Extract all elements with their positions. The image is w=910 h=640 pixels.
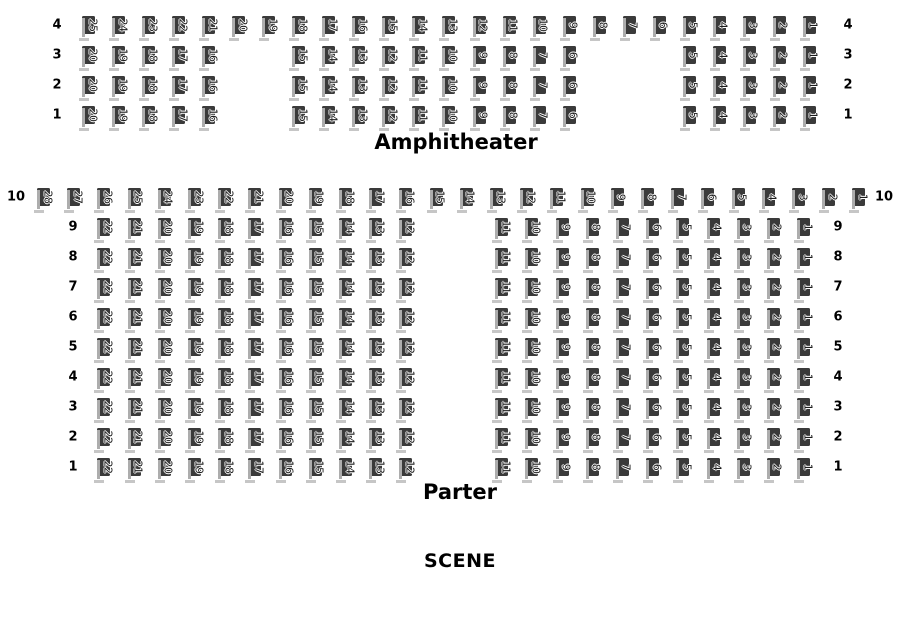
seat[interactable]: 8 [586,458,599,476]
seat[interactable]: 2 [767,368,780,386]
seat[interactable]: 12 [382,46,395,64]
seat[interactable]: 22 [97,248,110,266]
seat[interactable]: 7 [616,368,629,386]
seat[interactable]: 15 [309,428,322,446]
seat[interactable]: 22 [97,338,110,356]
seat[interactable]: 20 [158,278,171,296]
seat[interactable]: 18 [218,218,231,236]
seat[interactable]: 10 [581,188,594,206]
seat[interactable]: 9 [556,278,569,296]
seat[interactable]: 16 [279,218,292,236]
seat[interactable]: 11 [495,428,508,446]
seat[interactable]: 23 [142,16,155,34]
seat[interactable]: 5 [683,106,696,124]
seat[interactable]: 2 [767,398,780,416]
seat[interactable]: 22 [97,308,110,326]
seat[interactable]: 6 [646,308,659,326]
seat[interactable]: 25 [128,188,141,206]
seat[interactable]: 22 [97,368,110,386]
seat[interactable]: 1 [797,368,810,386]
seat[interactable]: 17 [248,308,261,326]
seat[interactable]: 23 [188,188,201,206]
seat[interactable]: 10 [525,398,538,416]
seat[interactable]: 1 [797,338,810,356]
seat[interactable]: 3 [743,106,756,124]
seat[interactable]: 14 [412,16,425,34]
seat[interactable]: 2 [767,308,780,326]
seat[interactable]: 9 [611,188,624,206]
seat[interactable]: 6 [563,106,576,124]
seat[interactable]: 11 [495,308,508,326]
seat[interactable]: 12 [399,428,412,446]
seat[interactable]: 19 [188,398,201,416]
seat[interactable]: 8 [503,46,516,64]
seat[interactable]: 3 [737,278,750,296]
seat[interactable]: 7 [616,218,629,236]
seat[interactable]: 6 [646,428,659,446]
seat[interactable]: 15 [292,46,305,64]
seat[interactable]: 14 [322,46,335,64]
seat[interactable]: 6 [563,46,576,64]
seat[interactable]: 9 [556,458,569,476]
seat[interactable]: 18 [218,368,231,386]
seat[interactable]: 4 [707,278,720,296]
seat[interactable]: 5 [732,188,745,206]
seat[interactable]: 17 [172,106,185,124]
seat[interactable]: 19 [112,76,125,94]
seat[interactable]: 7 [616,248,629,266]
seat[interactable]: 12 [399,248,412,266]
seat[interactable]: 14 [339,218,352,236]
seat[interactable]: 20 [82,46,95,64]
seat[interactable]: 9 [563,16,576,34]
seat[interactable]: 12 [399,308,412,326]
seat[interactable]: 4 [713,106,726,124]
seat[interactable]: 15 [309,398,322,416]
seat[interactable]: 18 [142,46,155,64]
seat[interactable]: 2 [767,248,780,266]
seat[interactable]: 14 [339,248,352,266]
seat[interactable]: 21 [202,16,215,34]
seat[interactable]: 16 [279,398,292,416]
seat[interactable]: 3 [737,218,750,236]
seat[interactable]: 22 [172,16,185,34]
seat[interactable]: 3 [743,16,756,34]
seat[interactable]: 20 [158,368,171,386]
seat[interactable]: 1 [797,398,810,416]
seat[interactable]: 7 [623,16,636,34]
seat[interactable]: 19 [112,46,125,64]
seat[interactable]: 22 [97,458,110,476]
seat[interactable]: 25 [82,16,95,34]
seat[interactable]: 10 [533,16,546,34]
seat[interactable]: 14 [339,428,352,446]
seat[interactable]: 20 [158,458,171,476]
seat[interactable]: 5 [676,428,689,446]
seat[interactable]: 12 [473,16,486,34]
seat[interactable]: 16 [399,188,412,206]
seat[interactable]: 3 [737,338,750,356]
seat[interactable]: 21 [128,308,141,326]
seat[interactable]: 6 [701,188,714,206]
seat[interactable]: 15 [309,248,322,266]
seat[interactable]: 11 [503,16,516,34]
seat[interactable]: 22 [97,218,110,236]
seat[interactable]: 18 [218,308,231,326]
seat[interactable]: 3 [737,248,750,266]
seat[interactable]: 21 [128,458,141,476]
seat[interactable]: 20 [158,338,171,356]
seat[interactable]: 14 [339,278,352,296]
seat[interactable]: 15 [309,338,322,356]
seat[interactable]: 9 [556,248,569,266]
seat[interactable]: 22 [97,278,110,296]
seat[interactable]: 19 [188,218,201,236]
seat[interactable]: 20 [158,428,171,446]
seat[interactable]: 19 [188,458,201,476]
seat[interactable]: 13 [369,218,382,236]
seat[interactable]: 7 [671,188,684,206]
seat[interactable]: 2 [773,46,786,64]
seat[interactable]: 2 [767,458,780,476]
seat[interactable]: 20 [158,308,171,326]
seat[interactable]: 15 [292,106,305,124]
seat[interactable]: 21 [128,278,141,296]
seat[interactable]: 19 [262,16,275,34]
seat[interactable]: 4 [707,368,720,386]
seat[interactable]: 17 [248,428,261,446]
seat[interactable]: 2 [773,106,786,124]
seat[interactable]: 13 [369,278,382,296]
seat[interactable]: 11 [495,458,508,476]
seat[interactable]: 7 [616,338,629,356]
seat[interactable]: 14 [339,368,352,386]
seat[interactable]: 2 [773,76,786,94]
seat[interactable]: 17 [248,458,261,476]
seat[interactable]: 2 [773,16,786,34]
seat[interactable]: 22 [218,188,231,206]
seat[interactable]: 16 [352,16,365,34]
seat[interactable]: 2 [767,338,780,356]
seat[interactable]: 7 [533,76,546,94]
seat[interactable]: 24 [158,188,171,206]
seat[interactable]: 12 [399,278,412,296]
seat[interactable]: 18 [218,278,231,296]
seat[interactable]: 27 [67,188,80,206]
seat[interactable]: 4 [713,16,726,34]
seat[interactable]: 7 [616,428,629,446]
seat[interactable]: 2 [822,188,835,206]
seat[interactable]: 17 [248,278,261,296]
seat[interactable]: 11 [495,248,508,266]
seat[interactable]: 9 [473,46,486,64]
seat[interactable]: 14 [339,458,352,476]
seat[interactable]: 16 [279,458,292,476]
seat[interactable]: 19 [309,188,322,206]
seat[interactable]: 1 [797,218,810,236]
seat[interactable]: 17 [369,188,382,206]
seat[interactable]: 20 [158,218,171,236]
seat[interactable]: 19 [188,368,201,386]
seat[interactable]: 18 [218,338,231,356]
seat[interactable]: 12 [399,338,412,356]
seat[interactable]: 17 [248,338,261,356]
seat[interactable]: 5 [683,76,696,94]
seat[interactable]: 13 [369,248,382,266]
seat[interactable]: 7 [533,46,546,64]
seat[interactable]: 14 [339,308,352,326]
seat[interactable]: 13 [369,338,382,356]
seat[interactable]: 6 [646,248,659,266]
seat[interactable]: 10 [525,428,538,446]
seat[interactable]: 8 [503,76,516,94]
seat[interactable]: 3 [743,46,756,64]
seat[interactable]: 8 [586,368,599,386]
seat[interactable]: 13 [369,398,382,416]
seat[interactable]: 10 [442,76,455,94]
seat[interactable]: 15 [382,16,395,34]
seat[interactable]: 10 [525,458,538,476]
seat[interactable]: 8 [586,308,599,326]
seat[interactable]: 1 [797,278,810,296]
seat[interactable]: 16 [279,428,292,446]
seat[interactable]: 26 [97,188,110,206]
seat[interactable]: 3 [737,428,750,446]
seat[interactable]: 5 [676,368,689,386]
seat[interactable]: 4 [713,76,726,94]
seat[interactable]: 22 [97,428,110,446]
seat[interactable]: 12 [399,218,412,236]
seat[interactable]: 15 [309,218,322,236]
seat[interactable]: 3 [792,188,805,206]
seat[interactable]: 21 [128,368,141,386]
seat[interactable]: 19 [188,338,201,356]
seat[interactable]: 9 [473,106,486,124]
seat[interactable]: 21 [248,188,261,206]
seat[interactable]: 10 [525,338,538,356]
seat[interactable]: 16 [202,76,215,94]
seat[interactable]: 8 [586,278,599,296]
seat[interactable]: 21 [128,218,141,236]
seat[interactable]: 10 [442,46,455,64]
seat[interactable]: 1 [803,76,816,94]
seat[interactable]: 18 [339,188,352,206]
seat[interactable]: 18 [142,76,155,94]
seat[interactable]: 6 [646,278,659,296]
seat[interactable]: 9 [473,76,486,94]
seat[interactable]: 4 [713,46,726,64]
seat[interactable]: 15 [292,76,305,94]
seat[interactable]: 4 [707,308,720,326]
seat[interactable]: 13 [369,428,382,446]
seat[interactable]: 12 [382,106,395,124]
seat[interactable]: 14 [339,338,352,356]
seat[interactable]: 8 [586,218,599,236]
seat[interactable]: 2 [767,218,780,236]
seat[interactable]: 17 [172,76,185,94]
seat[interactable]: 4 [707,458,720,476]
seat[interactable]: 17 [172,46,185,64]
seat[interactable]: 4 [707,248,720,266]
seat[interactable]: 20 [158,398,171,416]
seat[interactable]: 15 [430,188,443,206]
seat[interactable]: 4 [707,338,720,356]
seat[interactable]: 6 [646,368,659,386]
seat[interactable]: 21 [128,398,141,416]
seat[interactable]: 5 [683,16,696,34]
seat[interactable]: 20 [232,16,245,34]
seat[interactable]: 10 [525,278,538,296]
seat[interactable]: 8 [586,248,599,266]
seat[interactable]: 4 [762,188,775,206]
seat[interactable]: 9 [556,338,569,356]
seat[interactable]: 17 [248,218,261,236]
seat[interactable]: 6 [646,338,659,356]
seat[interactable]: 13 [352,46,365,64]
seat[interactable]: 8 [586,338,599,356]
seat[interactable]: 7 [616,398,629,416]
seat[interactable]: 5 [676,278,689,296]
seat[interactable]: 8 [503,106,516,124]
seat[interactable]: 14 [339,398,352,416]
seat[interactable]: 2 [767,278,780,296]
seat[interactable]: 13 [369,458,382,476]
seat[interactable]: 17 [248,398,261,416]
seat[interactable]: 9 [556,368,569,386]
seat[interactable]: 11 [495,368,508,386]
seat[interactable]: 8 [593,16,606,34]
seat[interactable]: 5 [676,338,689,356]
seat[interactable]: 21 [128,248,141,266]
seat[interactable]: 16 [279,308,292,326]
seat[interactable]: 10 [525,248,538,266]
seat[interactable]: 19 [188,248,201,266]
seat[interactable]: 1 [797,248,810,266]
seat[interactable]: 11 [495,278,508,296]
seat[interactable]: 19 [188,308,201,326]
seat[interactable]: 21 [128,428,141,446]
seat[interactable]: 1 [852,188,865,206]
seat[interactable]: 20 [158,248,171,266]
seat[interactable]: 21 [128,338,141,356]
seat[interactable]: 17 [248,248,261,266]
seat[interactable]: 13 [369,368,382,386]
seat[interactable]: 13 [442,16,455,34]
seat[interactable]: 8 [586,398,599,416]
seat[interactable]: 2 [767,428,780,446]
seat[interactable]: 9 [556,308,569,326]
seat[interactable]: 6 [563,76,576,94]
seat[interactable]: 3 [737,368,750,386]
seat[interactable]: 1 [797,308,810,326]
seat[interactable]: 5 [683,46,696,64]
seat[interactable]: 22 [97,398,110,416]
seat[interactable]: 14 [322,76,335,94]
seat[interactable]: 13 [490,188,503,206]
seat[interactable]: 1 [797,428,810,446]
seat[interactable]: 20 [82,76,95,94]
seat[interactable]: 4 [707,218,720,236]
seat[interactable]: 12 [399,458,412,476]
seat[interactable]: 18 [142,106,155,124]
seat[interactable]: 3 [737,398,750,416]
seat[interactable]: 19 [188,278,201,296]
seat[interactable]: 15 [309,458,322,476]
seat[interactable]: 15 [309,368,322,386]
seat[interactable]: 6 [646,398,659,416]
seat[interactable]: 1 [797,458,810,476]
seat[interactable]: 8 [586,428,599,446]
seat[interactable]: 5 [676,398,689,416]
seat[interactable]: 16 [202,46,215,64]
seat[interactable]: 15 [309,308,322,326]
seat[interactable]: 1 [803,106,816,124]
seat[interactable]: 24 [112,16,125,34]
seat[interactable]: 11 [412,106,425,124]
seat[interactable]: 3 [737,458,750,476]
seat[interactable]: 4 [707,428,720,446]
seat[interactable]: 3 [737,308,750,326]
seat[interactable]: 9 [556,398,569,416]
seat[interactable]: 18 [218,428,231,446]
seat[interactable]: 16 [279,338,292,356]
seat[interactable]: 19 [188,428,201,446]
seat[interactable]: 11 [550,188,563,206]
seat[interactable]: 6 [653,16,666,34]
seat[interactable]: 12 [399,398,412,416]
seat[interactable]: 8 [641,188,654,206]
seat[interactable]: 17 [248,368,261,386]
seat[interactable]: 7 [533,106,546,124]
seat[interactable]: 7 [616,308,629,326]
seat[interactable]: 10 [525,368,538,386]
seat[interactable]: 4 [707,398,720,416]
seat[interactable]: 9 [556,218,569,236]
seat[interactable]: 16 [279,368,292,386]
seat[interactable]: 11 [495,398,508,416]
seat[interactable]: 12 [520,188,533,206]
seat[interactable]: 18 [292,16,305,34]
seat[interactable]: 16 [279,248,292,266]
seat[interactable]: 19 [112,106,125,124]
seat[interactable]: 5 [676,308,689,326]
seat[interactable]: 12 [382,76,395,94]
seat[interactable]: 5 [676,458,689,476]
seat[interactable]: 14 [460,188,473,206]
seat[interactable]: 18 [218,248,231,266]
seat[interactable]: 11 [495,338,508,356]
seat[interactable]: 13 [369,308,382,326]
seat[interactable]: 7 [616,278,629,296]
seat[interactable]: 13 [352,76,365,94]
seat[interactable]: 13 [352,106,365,124]
seat[interactable]: 18 [218,398,231,416]
seat[interactable]: 3 [743,76,756,94]
seat[interactable]: 20 [82,106,95,124]
seat[interactable]: 9 [556,428,569,446]
seat[interactable]: 16 [279,278,292,296]
seat[interactable]: 1 [803,46,816,64]
seat[interactable]: 20 [279,188,292,206]
seat[interactable]: 10 [525,308,538,326]
seat[interactable]: 15 [309,278,322,296]
seat[interactable]: 17 [322,16,335,34]
seat[interactable]: 5 [676,248,689,266]
seat[interactable]: 14 [322,106,335,124]
seat[interactable]: 6 [646,458,659,476]
seat[interactable]: 6 [646,218,659,236]
seat[interactable]: 10 [525,218,538,236]
